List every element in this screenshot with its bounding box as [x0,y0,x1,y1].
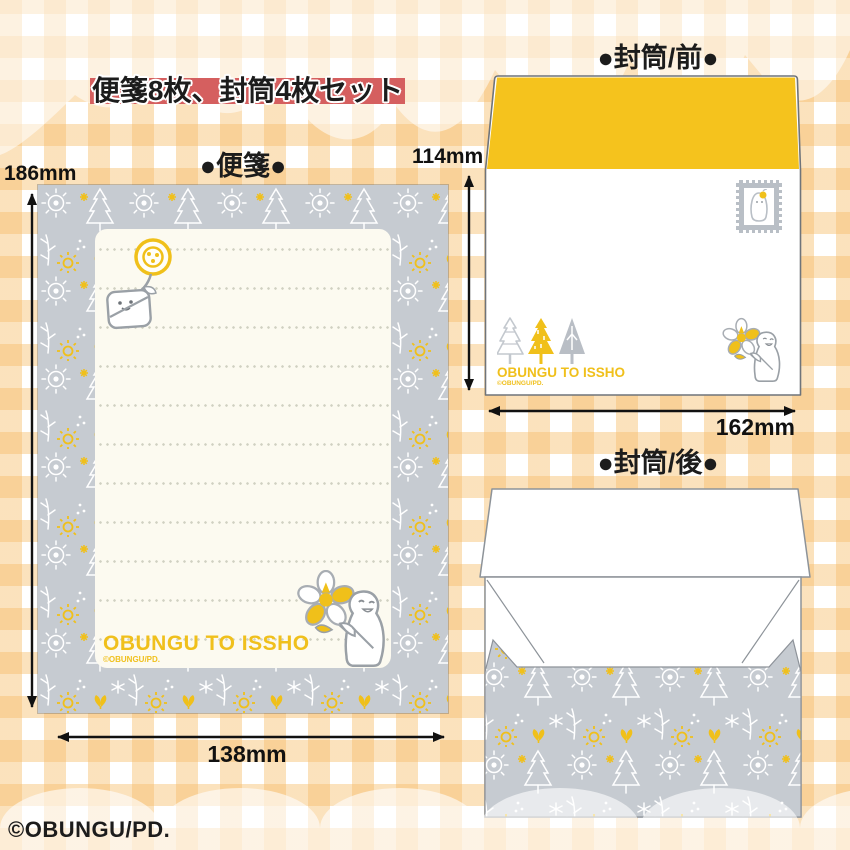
letter-paper-preview: OBUNGU TO ISSHO ©OBUNGU/PD. [38,185,448,713]
title-banner: 便箋8枚、封筒4枚セット [90,78,405,104]
envelope-height-dimension: 114mm [412,145,483,169]
ghost-flower-character [294,570,399,673]
footer-copyright: ©OBUNGU/PD. [8,817,170,843]
envelope-back-preview [476,483,826,823]
envelope-flap [487,78,799,170]
envelope-back-section-label: ●封筒/後● [558,441,758,480]
title-banner-text: 便箋8枚、封筒4枚セット [92,77,403,105]
brand-text: OBUNGU TO ISSHO [497,366,625,380]
three-trees-icon [497,317,585,369]
button-flower-character [98,235,183,333]
envelope-width-dimension: 162mm [700,414,795,441]
letter-brand-logo: OBUNGU TO ISSHO ©OBUNGU/PD. [103,633,310,664]
envelope-back-pattern-flap [485,640,801,817]
brand-copyright: ©OBUNGU/PD. [103,656,310,664]
brand-text: OBUNGU TO ISSHO [103,633,310,654]
stamp-bird-character [744,189,774,225]
postage-stamp-icon [736,180,782,233]
envelope-open-flap [480,489,810,577]
envelope-front-preview: OBUNGU TO ISSHO ©OBUNGU/PD. [478,70,808,400]
letter-height-dimension: 186mm [4,162,76,186]
stamp-frame [744,188,774,225]
product-sheet: 便箋8枚、封筒4枚セット ●便箋● OBUNGU TO ISSHO [0,0,850,850]
ghost-flower-character [721,310,789,394]
envelope-brand-logo: OBUNGU TO ISSHO ©OBUNGU/PD. [497,366,625,387]
letter-width-dimension: 138mm [197,741,297,768]
letter-section-label: ●便箋● [150,144,336,183]
brand-copyright: ©OBUNGU/PD. [497,381,625,388]
